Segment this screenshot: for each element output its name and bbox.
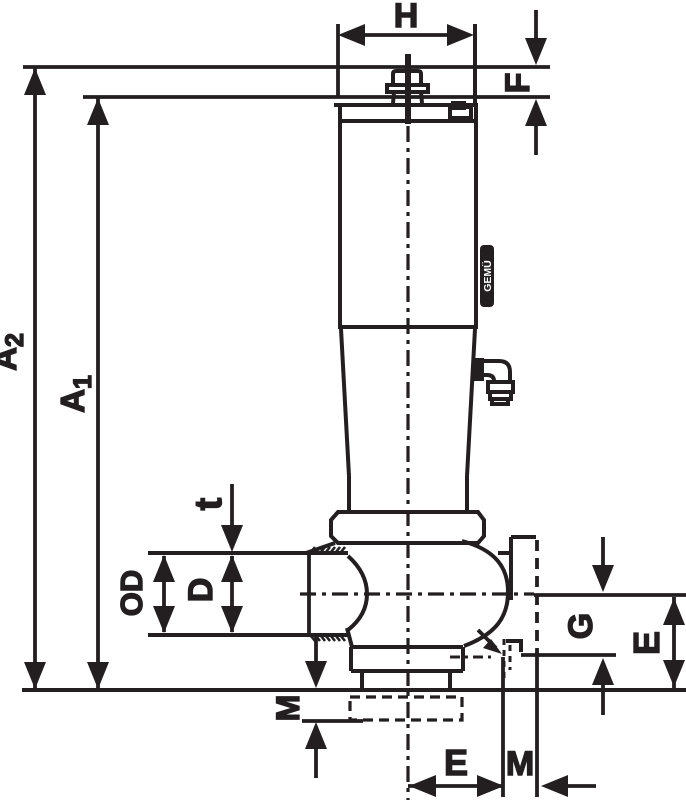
svg-text:D: D xyxy=(182,578,220,603)
svg-text:GEMÜ: GEMÜ xyxy=(481,260,494,292)
svg-text:F: F xyxy=(499,73,537,94)
svg-text:M: M xyxy=(270,695,306,722)
svg-text:E: E xyxy=(626,631,667,655)
svg-text:OD: OD xyxy=(114,570,149,617)
svg-text:t: t xyxy=(188,497,230,510)
svg-text:M: M xyxy=(506,745,534,783)
svg-text:E: E xyxy=(444,742,468,783)
svg-text:H: H xyxy=(394,0,419,35)
svg-text:G: G xyxy=(562,613,600,639)
